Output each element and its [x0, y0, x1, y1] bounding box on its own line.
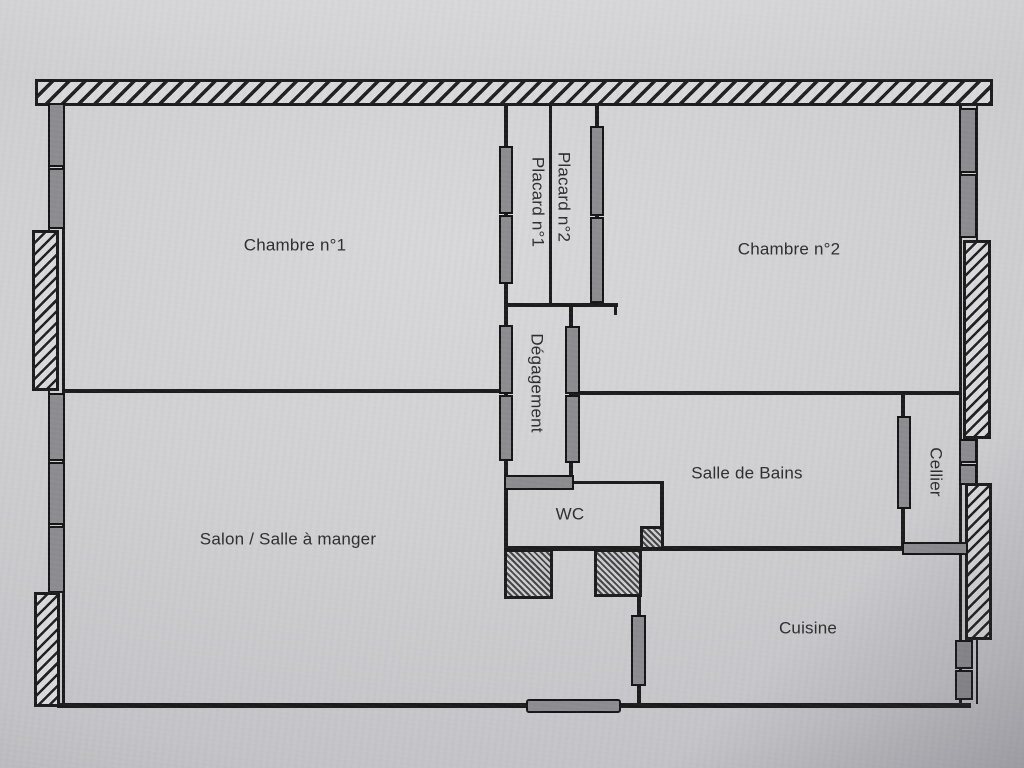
placard1-door-segment-2 [499, 215, 513, 284]
room-label-cuisine: Cuisine [779, 620, 837, 637]
degagement-right-door-segment-2 [565, 395, 580, 463]
wall-placard-divider [549, 104, 552, 305]
room-label-degagement: Dégagement [529, 333, 546, 432]
window-left-upper-segment-1 [48, 103, 65, 167]
window-right-cellier-segment-2 [959, 464, 977, 485]
duct-left [504, 549, 553, 599]
placard1-door-segment-1 [499, 146, 513, 214]
window-left-lower-segment-3 [48, 526, 65, 593]
room-label-placard1: Placard n°1 [530, 157, 547, 247]
cuisine-door [631, 615, 646, 686]
cellier-cuisine-door [902, 542, 968, 555]
duct-right [594, 549, 642, 597]
window-right-cuisine-segment-2 [955, 670, 973, 700]
wall-salledebains-bottom-cuisine-top [504, 546, 906, 551]
wc-door [504, 475, 574, 490]
cellier-door [897, 416, 911, 509]
floor-plan: Chambre n°1 Chambre n°2 Placard n°1 Plac… [0, 0, 1024, 768]
wall-placard-bottom [504, 303, 618, 307]
window-right-chambre2-segment-2 [959, 174, 977, 238]
window-left-upper-segment-2 [48, 168, 65, 229]
wall-pier-right-upper [963, 240, 991, 439]
window-right-cellier-segment-1 [959, 439, 977, 463]
wall-pier-left-lower [34, 592, 60, 707]
room-label-chambre1: Chambre n°1 [244, 237, 347, 254]
degagement-left-door-segment-1 [499, 325, 513, 394]
degagement-left-door-segment-2 [499, 395, 513, 461]
window-right-cuisine-segment-1 [955, 640, 973, 669]
placard2-door-segment-2 [590, 217, 604, 303]
room-label-wc: WC [556, 506, 585, 523]
room-label-salledebains: Salle de Bains [691, 465, 802, 482]
degagement-right-door-segment-1 [565, 326, 580, 394]
room-label-cellier: Cellier [928, 447, 945, 497]
duct-wc-corner [640, 526, 664, 550]
wall-chambre1-salon [62, 389, 508, 393]
room-label-chambre2: Chambre n°2 [738, 241, 841, 258]
entrance-door [526, 699, 621, 713]
window-right-chambre2-segment-1 [959, 108, 977, 173]
room-label-placard2: Placard n°2 [556, 152, 573, 242]
wall-pier-right-lower [965, 483, 992, 640]
wall-stub-chambre2-door [614, 303, 617, 315]
room-label-salon: Salon / Salle à manger [200, 531, 376, 548]
placard2-door-segment-1 [590, 126, 604, 216]
exterior-wall-top [35, 79, 993, 106]
window-left-lower-segment-2 [48, 462, 65, 525]
exterior-wall-bottom [57, 703, 971, 708]
window-left-lower-segment-1 [48, 393, 65, 461]
wall-pier-left-upper [32, 230, 59, 391]
wall-wc-right [660, 481, 664, 531]
